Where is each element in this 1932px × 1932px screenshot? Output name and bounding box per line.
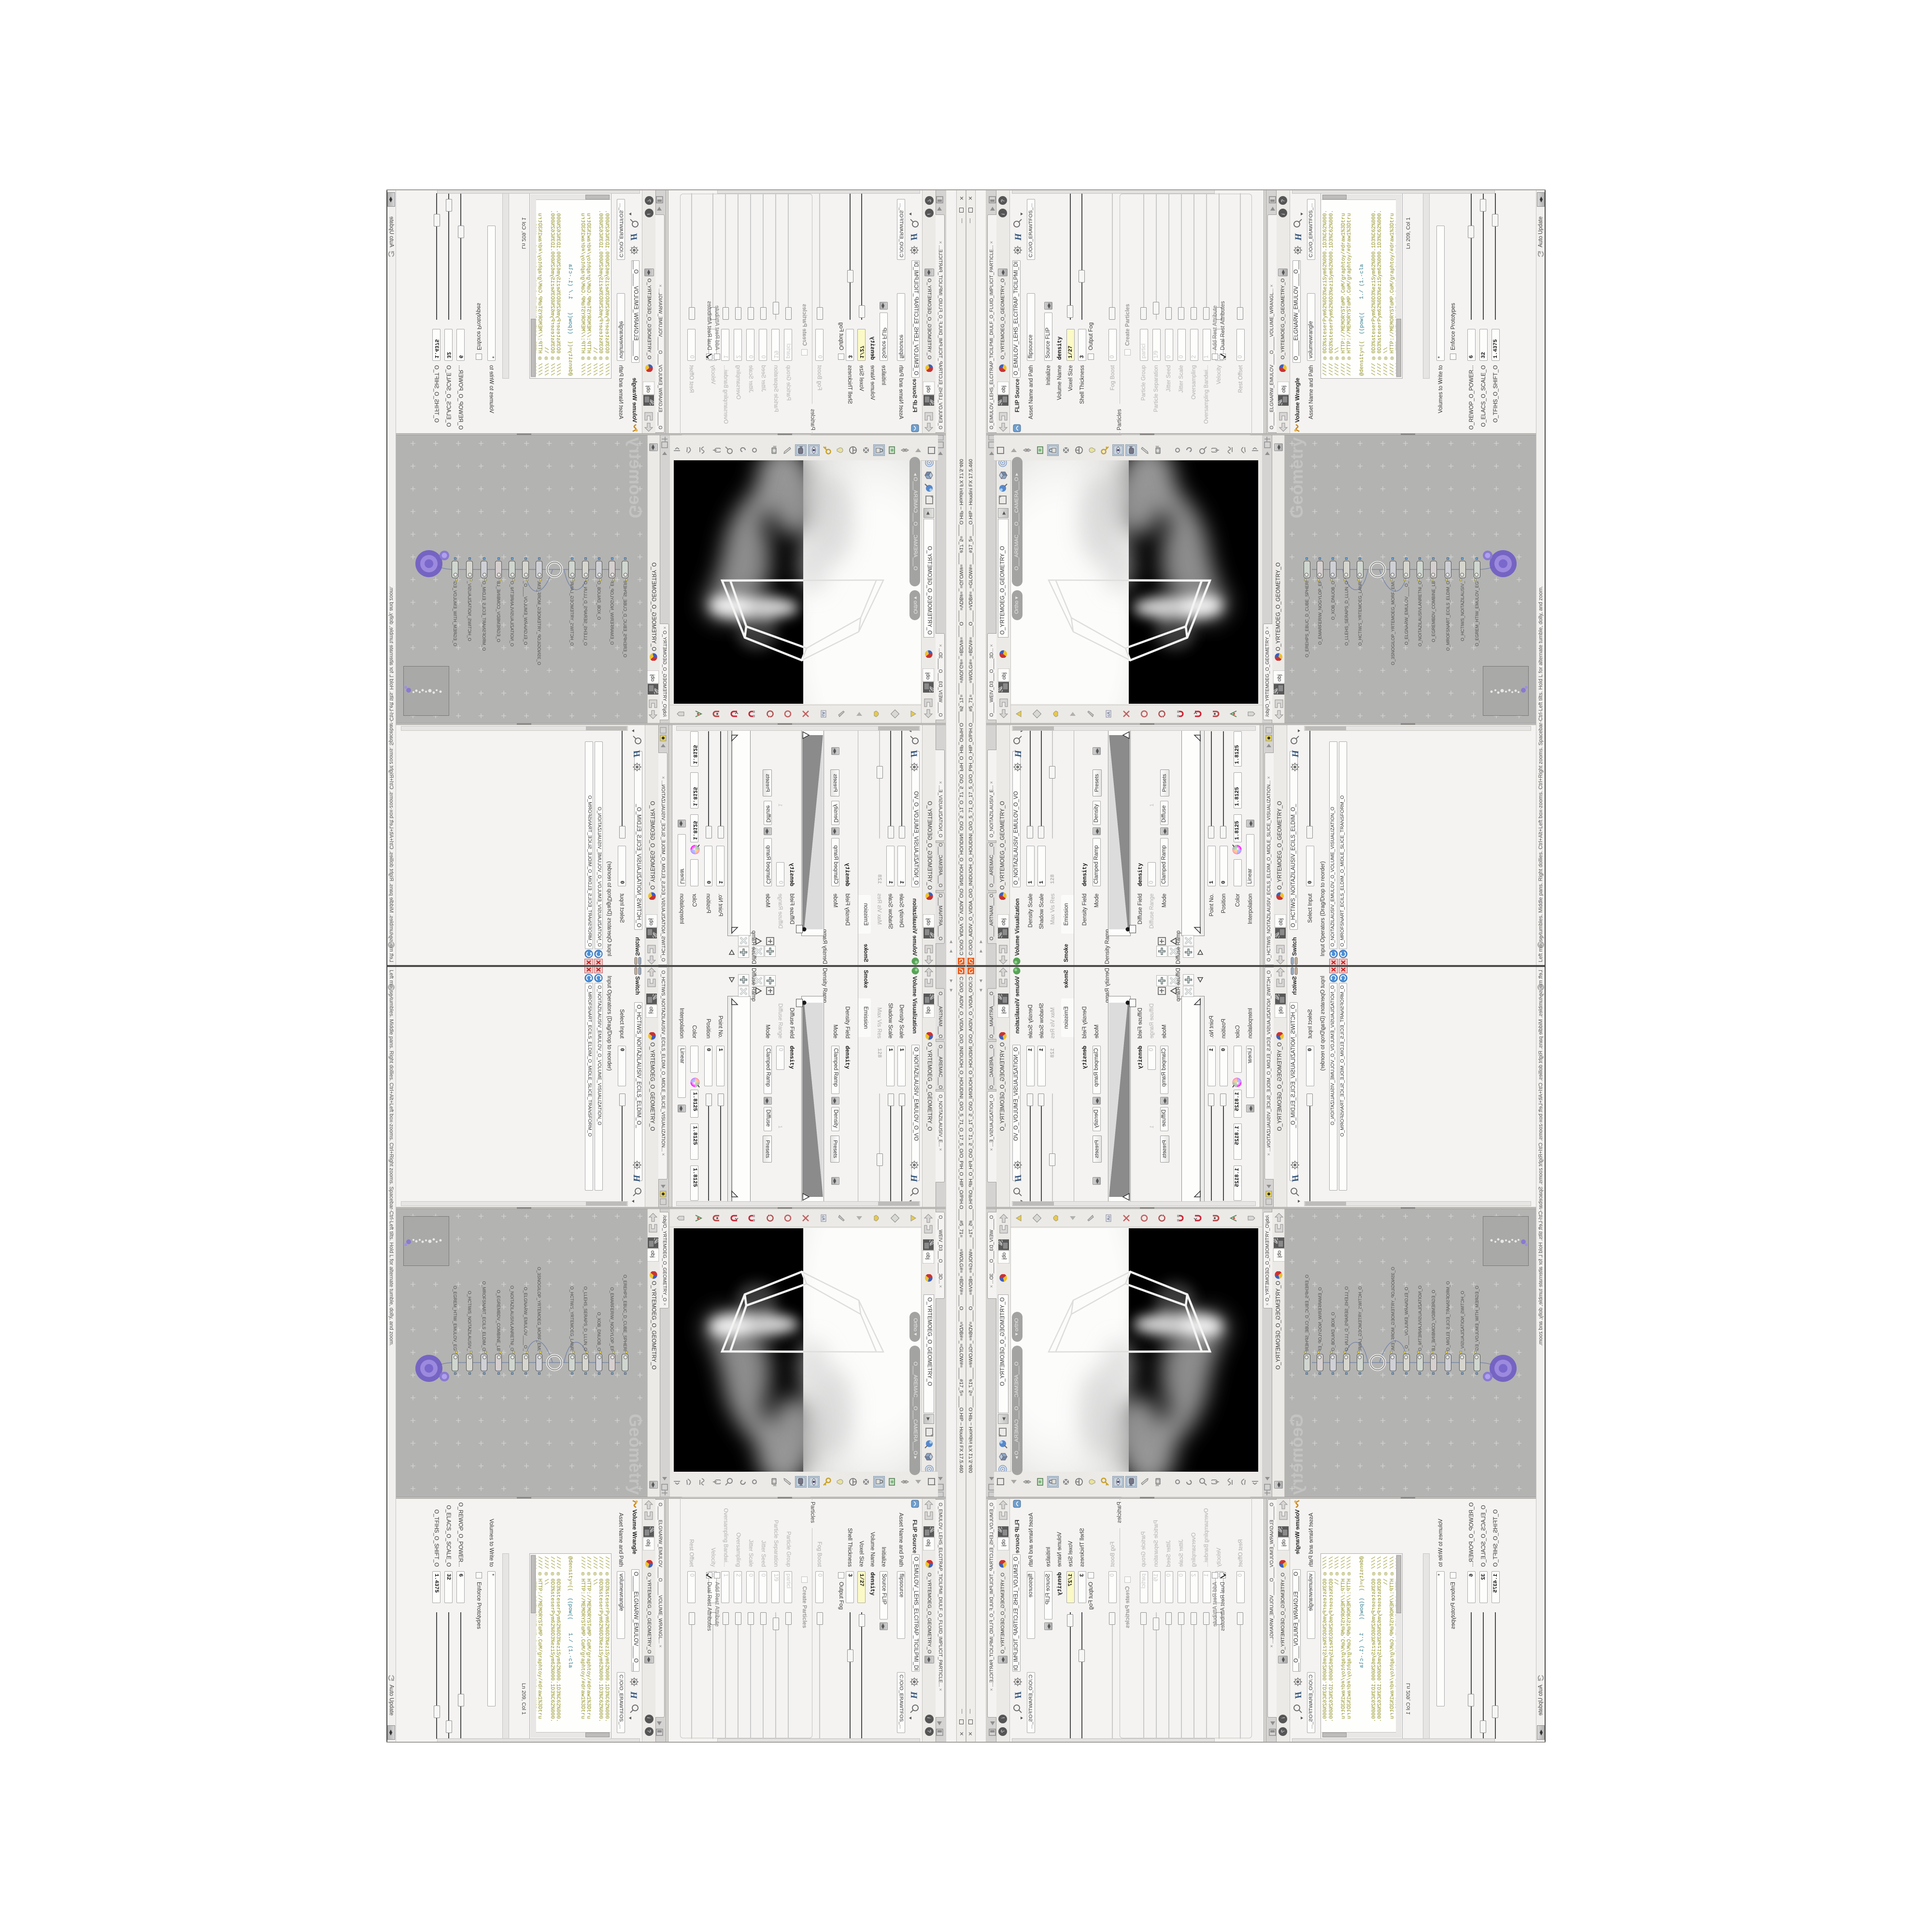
svg-text:obj: obj xyxy=(1001,918,1007,925)
svg-text:obj: obj xyxy=(645,1539,651,1547)
svg-text:obj: obj xyxy=(1278,918,1284,925)
svg-text:H: H xyxy=(1293,233,1304,241)
svg-text:obj: obj xyxy=(650,674,655,682)
svg-text:H: H xyxy=(631,1174,641,1182)
svg-text:H: H xyxy=(1013,750,1023,758)
svg-text:obj: obj xyxy=(1281,1539,1287,1547)
svg-text:obj: obj xyxy=(1001,1007,1007,1014)
svg-text:H: H xyxy=(628,233,639,241)
svg-text:i: i xyxy=(1000,213,1006,215)
svg-text:i: i xyxy=(646,213,652,215)
svg-text:obj: obj xyxy=(1277,1250,1282,1258)
svg-text:obj: obj xyxy=(1001,1252,1007,1260)
svg-text:H: H xyxy=(909,1174,919,1182)
svg-text:obj: obj xyxy=(648,918,654,925)
svg-text:i: i xyxy=(1280,213,1286,215)
svg-text:obj: obj xyxy=(648,1007,654,1014)
svg-text:H: H xyxy=(1013,233,1023,241)
svg-text:?: ? xyxy=(1280,199,1286,202)
svg-text:H: H xyxy=(909,233,919,241)
svg-text:obj: obj xyxy=(1281,385,1287,393)
svg-text:obj: obj xyxy=(925,918,931,925)
svg-text:obj: obj xyxy=(1001,385,1007,393)
svg-text:H: H xyxy=(631,750,641,758)
svg-text:i: i xyxy=(1280,1717,1286,1719)
svg-text:obj: obj xyxy=(650,1250,655,1258)
svg-text:?: ? xyxy=(926,1730,932,1733)
svg-text:obj: obj xyxy=(925,1539,931,1547)
svg-text:H: H xyxy=(909,750,919,758)
svg-text:?: ? xyxy=(926,199,932,202)
svg-text:H: H xyxy=(1013,1174,1023,1182)
svg-text:?: ? xyxy=(646,1730,652,1733)
svg-text:i: i xyxy=(926,213,932,215)
svg-text:i: i xyxy=(1000,1717,1006,1719)
svg-text:?: ? xyxy=(646,199,652,202)
svg-text:H: H xyxy=(1291,1174,1301,1182)
svg-text:obj: obj xyxy=(1277,674,1282,682)
svg-text:cA: cA xyxy=(821,1216,825,1221)
svg-text:H: H xyxy=(628,1691,639,1699)
svg-text:H: H xyxy=(1293,1691,1304,1699)
svg-text:?: ? xyxy=(1280,1730,1286,1733)
svg-text:?: ? xyxy=(1000,1730,1006,1733)
svg-text:?: ? xyxy=(1000,199,1006,202)
svg-text:obj: obj xyxy=(645,385,651,393)
svg-text:obj: obj xyxy=(1001,672,1007,680)
svg-text:cA: cA xyxy=(821,711,825,716)
svg-text:i: i xyxy=(646,1717,652,1719)
svg-text:obj: obj xyxy=(925,1007,931,1014)
svg-text:obj: obj xyxy=(1278,1007,1284,1014)
svg-text:obj: obj xyxy=(1001,1539,1007,1547)
svg-text:H: H xyxy=(909,1691,919,1699)
svg-text:cA: cA xyxy=(1107,711,1111,716)
svg-text:obj: obj xyxy=(925,1252,931,1260)
svg-text:H: H xyxy=(1013,1691,1023,1699)
svg-text:i: i xyxy=(926,1717,932,1719)
svg-text:H: H xyxy=(1291,750,1301,758)
svg-text:obj: obj xyxy=(925,672,931,680)
svg-text:cA: cA xyxy=(1107,1216,1111,1221)
svg-text:obj: obj xyxy=(925,385,931,393)
